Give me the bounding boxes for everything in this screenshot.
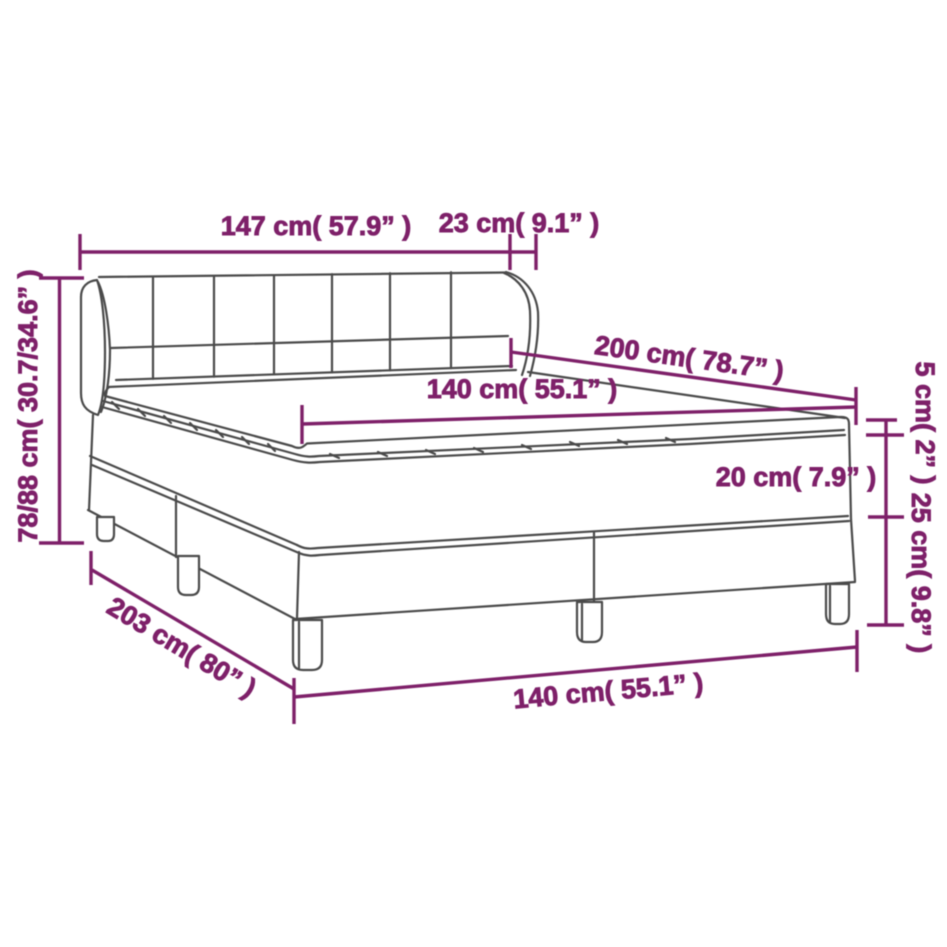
svg-text:140 cm( 55.1” ): 140 cm( 55.1” ) bbox=[427, 374, 618, 404]
svg-text:25 cm( 9.8” ): 25 cm( 9.8” ) bbox=[906, 493, 936, 654]
svg-text:20 cm( 7.9” ): 20 cm( 7.9” ) bbox=[716, 462, 877, 492]
svg-text:78/88 cm( 30.7/34.6” ): 78/88 cm( 30.7/34.6” ) bbox=[13, 269, 43, 542]
svg-text:23 cm( 9.1” ): 23 cm( 9.1” ) bbox=[439, 208, 600, 238]
svg-text:147 cm( 57.9” ): 147 cm( 57.9” ) bbox=[221, 211, 412, 241]
svg-text:5 cm( 2” ): 5 cm( 2” ) bbox=[910, 361, 940, 484]
